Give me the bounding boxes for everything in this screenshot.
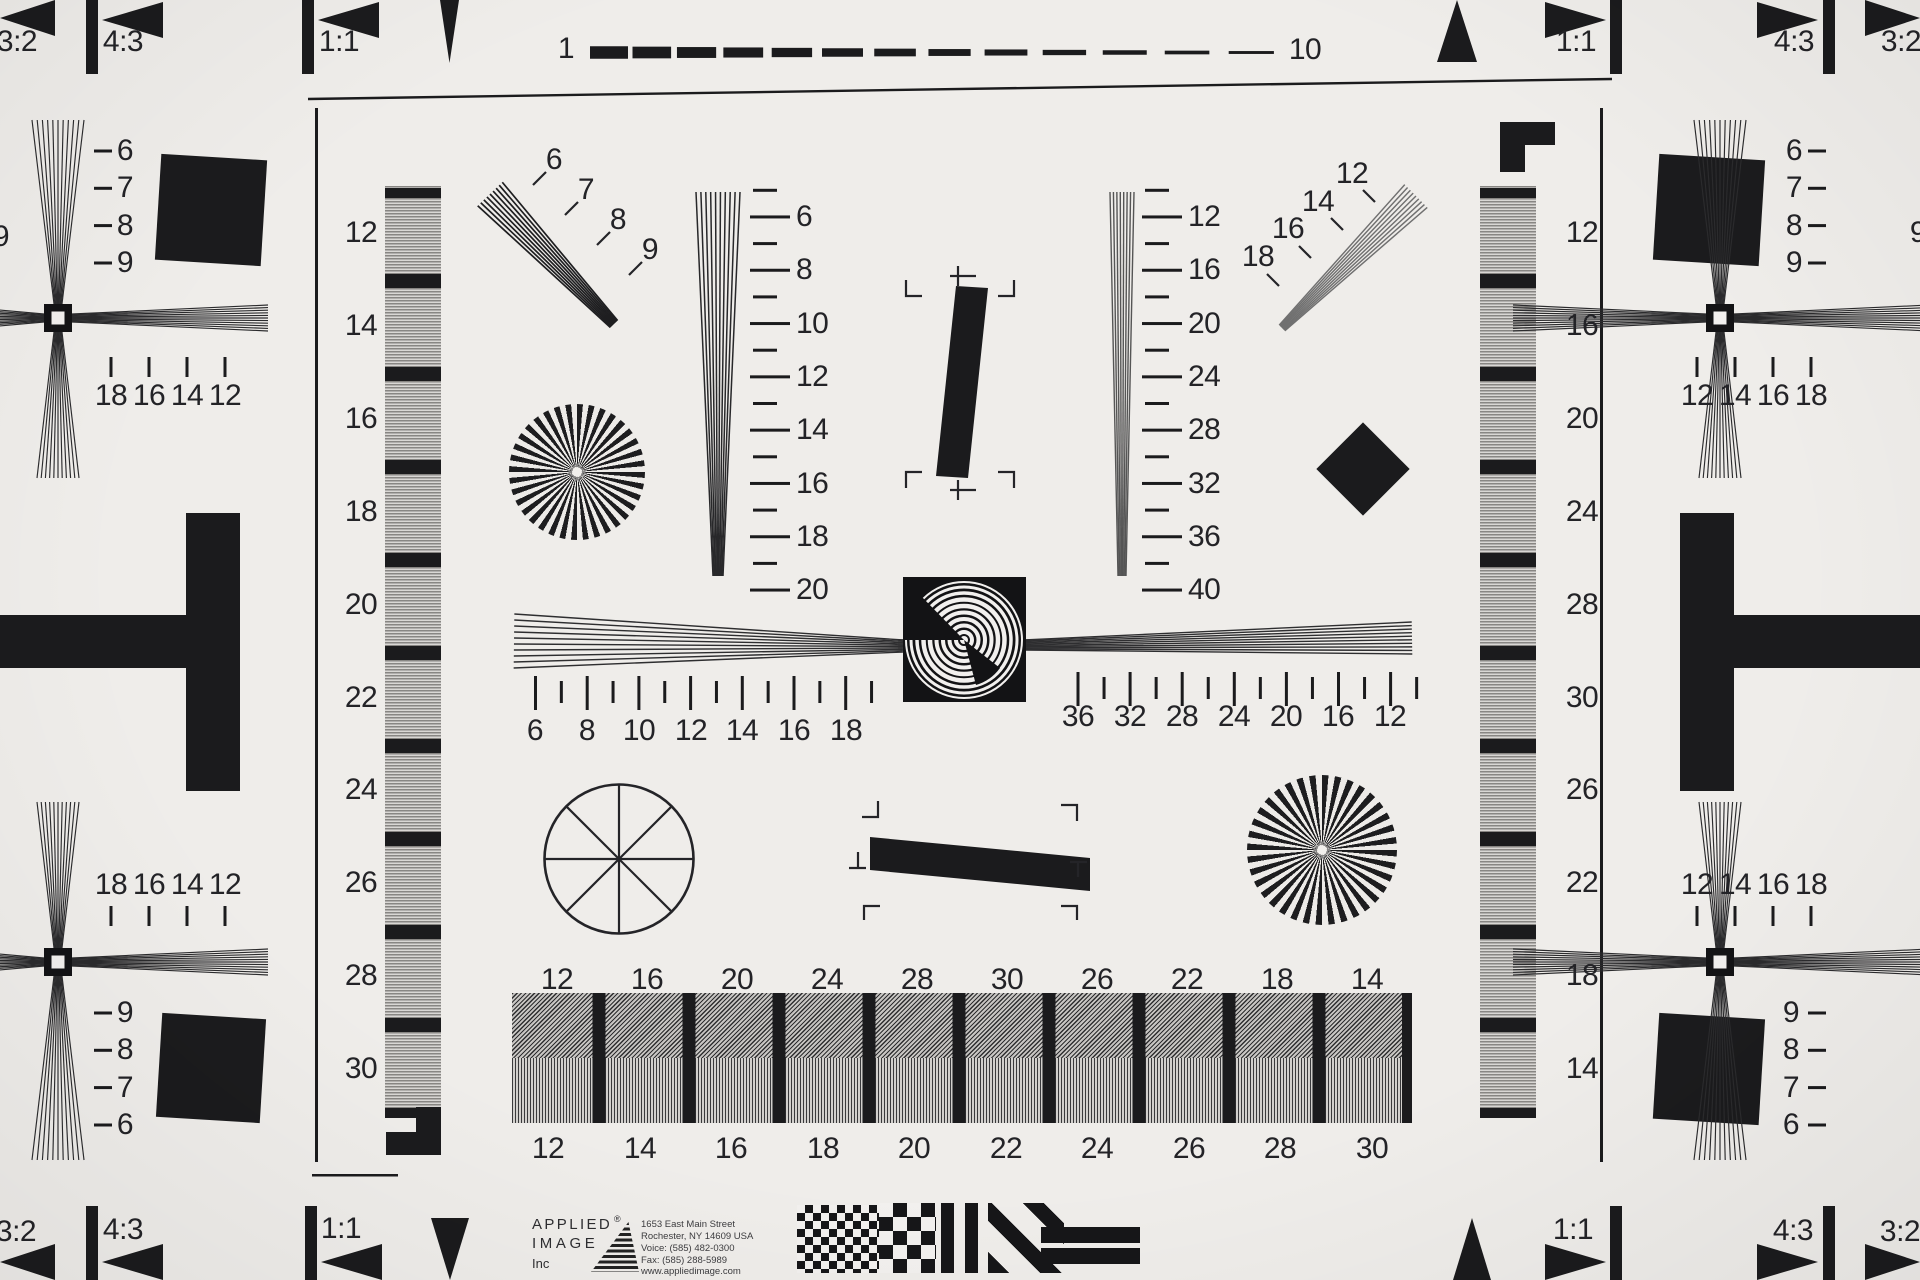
bar-scale-number: 22 [1171, 963, 1203, 997]
wedge-scale-number: 36 [1062, 700, 1094, 734]
wedge-scale-number: 8 [579, 714, 595, 748]
bar-scale-number: 28 [345, 959, 377, 993]
wedge-scale-number: 10 [623, 714, 655, 748]
edge-partial-digit: 9 [1910, 216, 1920, 250]
wedge-scale-number: 7 [578, 173, 594, 207]
bar-scale-number: 12 [541, 963, 573, 997]
bar-scale-number: 18 [1261, 963, 1293, 997]
wedge-scale-number: 12 [675, 714, 707, 748]
tick-scale-number: 16 [1757, 868, 1789, 902]
wedge-scale-number: 10 [796, 307, 828, 341]
tick-scale-number: 12 [209, 379, 241, 413]
bar-scale-number: 30 [345, 1052, 377, 1086]
aspect-ratio-label: 1:1 [319, 25, 359, 59]
wedge-scale-number: 20 [1270, 700, 1302, 734]
wedge-scale-number: 36 [1188, 520, 1220, 554]
bar-scale-number: 16 [715, 1132, 747, 1166]
wedge-scale-number: 9 [117, 246, 133, 280]
wedge-scale-number: 18 [830, 714, 862, 748]
wedge-scale-number: 9 [117, 996, 133, 1030]
wedge-scale-number: 32 [1114, 700, 1146, 734]
bar-scale-number: 12 [1566, 216, 1598, 250]
wedge-scale-number: 6 [796, 200, 812, 234]
tick-scale-number: 18 [1795, 868, 1827, 902]
tick-scale-number: 12 [1681, 379, 1713, 413]
tick-scale-number: 12 [209, 868, 241, 902]
wedge-scale-number: 6 [1783, 1108, 1799, 1142]
tick-scale-number: 12 [1681, 868, 1713, 902]
tick-scale-number: 18 [95, 868, 127, 902]
wedge-scale-number: 7 [117, 171, 133, 205]
aspect-ratio-label: 1:1 [1556, 25, 1596, 59]
bar-scale-number: 28 [1566, 588, 1598, 622]
brand-website: www.appliedimage.com [641, 1266, 741, 1277]
wedge-scale-number: 6 [117, 134, 133, 168]
bar-scale-number: 24 [1081, 1132, 1113, 1166]
bar-scale-number: 18 [807, 1132, 839, 1166]
bar-scale-number: 20 [1566, 402, 1598, 436]
wedge-scale-number: 14 [726, 714, 758, 748]
wedge-scale-number: 12 [1188, 200, 1220, 234]
wedge-scale-number: 16 [1322, 700, 1354, 734]
bar-scale-number: 22 [990, 1132, 1022, 1166]
wedge-scale-number: 7 [1786, 171, 1802, 205]
wedge-scale-number: 32 [1188, 467, 1220, 501]
wedge-scale-number: 12 [1336, 157, 1368, 191]
bar-scale-number: 30 [1566, 681, 1598, 715]
aspect-ratio-label: 3:2 [1880, 1215, 1920, 1249]
tick-scale-number: 16 [1757, 379, 1789, 413]
brand-name-line2: IMAGE [532, 1235, 598, 1252]
bar-scale-number: 16 [631, 963, 663, 997]
bar-scale-number: 22 [1566, 866, 1598, 900]
bar-scale-number: 30 [991, 963, 1023, 997]
wedge-scale-number: 8 [796, 253, 812, 287]
wedge-scale-number: 8 [610, 203, 626, 237]
bar-scale-number: 14 [345, 309, 377, 343]
brand-phone-line: Voice: (585) 482-0300 [641, 1243, 734, 1254]
aspect-ratio-label: 4:3 [103, 25, 143, 59]
bar-scale-number: 20 [898, 1132, 930, 1166]
aspect-ratio-label: 3:2 [0, 1215, 36, 1249]
wedge-scale-number: 6 [527, 714, 543, 748]
edge-partial-digit: 9 [0, 220, 9, 254]
wedge-scale-number: 18 [796, 520, 828, 554]
bar-scale-number: 14 [1351, 963, 1383, 997]
wedge-scale-number: 6 [546, 143, 562, 177]
wedge-scale-number: 9 [642, 233, 658, 267]
wedge-scale-number: 9 [1786, 246, 1802, 280]
tick-scale-number: 14 [1719, 868, 1751, 902]
wedge-scale-number: 18 [1242, 240, 1274, 274]
bar-scale-number: 22 [345, 681, 377, 715]
wedge-scale-number: 24 [1188, 360, 1220, 394]
bar-scale-number: 28 [1264, 1132, 1296, 1166]
bar-scale-number: 18 [1566, 959, 1598, 993]
dash-scale-end-label: 10 [1289, 33, 1321, 67]
wedge-scale-number: 24 [1218, 700, 1250, 734]
bar-scale-number: 28 [901, 963, 933, 997]
wedge-scale-number: 6 [1786, 134, 1802, 168]
bar-scale-number: 30 [1356, 1132, 1388, 1166]
aspect-ratio-label: 1:1 [1553, 1213, 1593, 1247]
bar-scale-number: 26 [1173, 1132, 1205, 1166]
bar-scale-number: 26 [1566, 773, 1598, 807]
wedge-scale-number: 16 [778, 714, 810, 748]
chart-graphics [0, 0, 1920, 1280]
wedge-scale-number: 14 [1302, 185, 1334, 219]
registered-trademark-symbol: ® [614, 1214, 621, 1224]
wedge-scale-number: 7 [117, 1071, 133, 1105]
wedge-scale-number: 20 [796, 573, 828, 607]
wedge-scale-number: 12 [796, 360, 828, 394]
brand-name-line1: APPLIED [532, 1216, 612, 1233]
tick-scale-number: 14 [171, 868, 203, 902]
wedge-scale-number: 8 [1783, 1033, 1799, 1067]
aspect-ratio-label: 3:2 [1881, 25, 1920, 59]
brand-fax-line: Fax: (585) 288-5989 [641, 1255, 727, 1266]
wedge-scale-number: 12 [1374, 700, 1406, 734]
bar-scale-number: 14 [1566, 1052, 1598, 1086]
wedge-scale-number: 9 [1783, 996, 1799, 1030]
wedge-scale-number: 8 [117, 209, 133, 243]
wedge-scale-number: 14 [796, 413, 828, 447]
bar-scale-number: 18 [345, 495, 377, 529]
aspect-ratio-label: 3:2 [0, 25, 37, 59]
dash-scale-start-label: 1 [558, 32, 574, 66]
tick-scale-number: 14 [171, 379, 203, 413]
bar-scale-number: 24 [345, 773, 377, 807]
bar-scale-number: 26 [1081, 963, 1113, 997]
wedge-scale-number: 28 [1166, 700, 1198, 734]
tick-scale-number: 14 [1719, 379, 1751, 413]
wedge-scale-number: 20 [1188, 307, 1220, 341]
bar-scale-number: 26 [345, 866, 377, 900]
bar-scale-number: 20 [721, 963, 753, 997]
wedge-scale-number: 8 [1786, 209, 1802, 243]
bar-scale-number: 20 [345, 588, 377, 622]
aspect-ratio-label: 4:3 [1774, 25, 1814, 59]
tick-scale-number: 18 [1795, 379, 1827, 413]
wedge-scale-number: 16 [1188, 253, 1220, 287]
aspect-ratio-label: 4:3 [103, 1213, 143, 1247]
bar-scale-number: 16 [345, 402, 377, 436]
tick-scale-number: 16 [133, 868, 165, 902]
wedge-scale-number: 16 [796, 467, 828, 501]
brand-address-line: 1653 East Main Street [641, 1219, 735, 1230]
bar-scale-number: 16 [1566, 309, 1598, 343]
wedge-scale-number: 40 [1188, 573, 1220, 607]
brand-address-line: Rochester, NY 14609 USA [641, 1231, 753, 1242]
iso-resolution-test-chart: 3:2 4:3 1:1 1 10 1:1 4:3 3:2 3:2 4:3 1:1… [0, 0, 1920, 1280]
bar-scale-number: 14 [624, 1132, 656, 1166]
tick-scale-number: 18 [95, 379, 127, 413]
wedge-scale-number: 6 [117, 1108, 133, 1142]
wedge-scale-number: 8 [117, 1033, 133, 1067]
bar-scale-number: 24 [1566, 495, 1598, 529]
brand-name-line3: Inc [532, 1256, 549, 1271]
wedge-scale-number: 28 [1188, 413, 1220, 447]
bar-scale-number: 12 [345, 216, 377, 250]
bar-scale-number: 24 [811, 963, 843, 997]
bar-scale-number: 12 [532, 1132, 564, 1166]
aspect-ratio-label: 4:3 [1773, 1214, 1813, 1248]
tick-scale-number: 16 [133, 379, 165, 413]
wedge-scale-number: 16 [1272, 212, 1304, 246]
wedge-scale-number: 7 [1783, 1071, 1799, 1105]
aspect-ratio-label: 1:1 [321, 1212, 361, 1246]
